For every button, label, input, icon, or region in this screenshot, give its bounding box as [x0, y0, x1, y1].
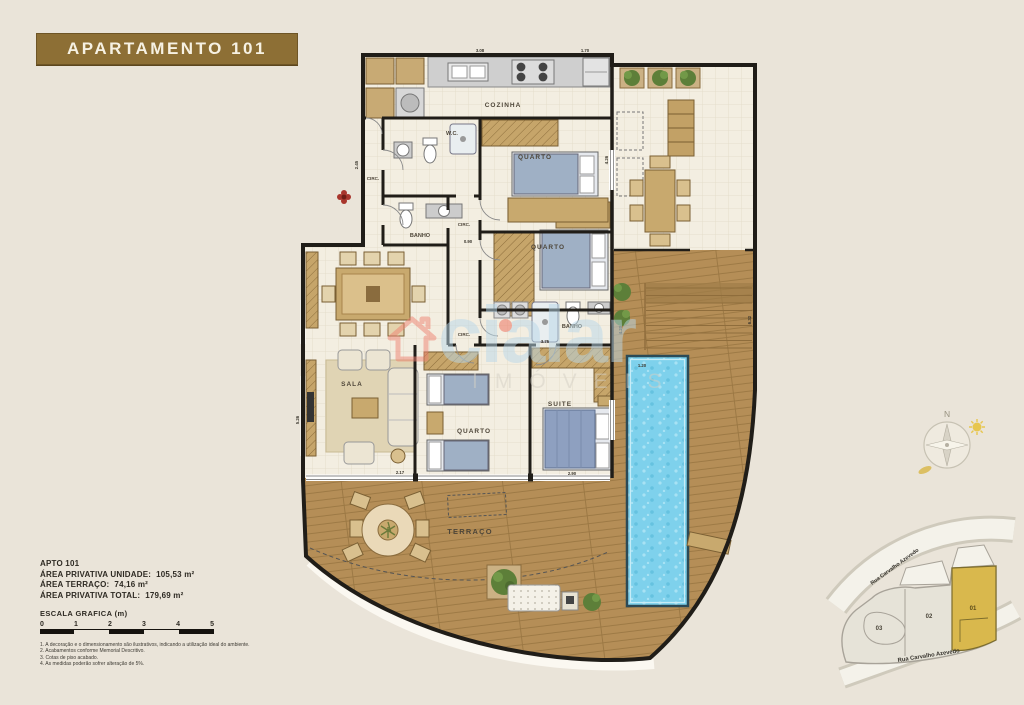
armchair [338, 350, 362, 370]
room-label-quarto1: QUARTO [518, 154, 552, 161]
scale-tick: 2 [108, 621, 112, 628]
stool [391, 449, 405, 463]
room-label-wc: W.C. [446, 131, 458, 137]
dresser [424, 352, 478, 370]
footnote: 4. As medidas poderão sofrer alteração d… [40, 661, 320, 667]
desk [508, 198, 608, 222]
dim-label: 1.70 [581, 48, 590, 53]
dim-label: 5.26 [295, 415, 300, 424]
site-unit-label-03: 03 [876, 626, 883, 632]
loveseat [344, 442, 374, 464]
nightstand [427, 412, 443, 434]
pool [627, 356, 688, 606]
scale-tick: 4 [176, 621, 180, 628]
area-label: ÁREA PRIVATIVA UNIDADE: [40, 570, 151, 579]
area-value: 179,69 m² [145, 591, 183, 600]
area-value: 105,53 m² [156, 570, 194, 579]
graphic-scale: ESCALA GRAFICA (m) 0 1 2 3 4 5 [40, 609, 214, 634]
dim-label: 4.20 [618, 325, 623, 334]
sun-icon [969, 419, 985, 435]
scale-tick: 3 [142, 621, 146, 628]
dim-label: 1.20 [638, 363, 647, 368]
dim-label: 2.17 [396, 470, 405, 475]
lounge-mat [508, 585, 560, 611]
scale-ticks: 0 1 2 3 4 5 [40, 621, 214, 628]
decorative-marker [337, 190, 351, 204]
toilet [424, 145, 436, 163]
scale-label: ESCALA GRAFICA (m) [40, 609, 214, 618]
site-upper-block [900, 561, 950, 585]
compass: N [917, 409, 985, 476]
armchair [366, 350, 390, 370]
room-label-sala: SALA [341, 381, 363, 388]
room-label-circ1: CIRC. [367, 176, 380, 181]
area-label: ÁREA TERRAÇO: [40, 580, 109, 589]
moon-icon [917, 464, 932, 475]
scale-tick: 5 [210, 621, 214, 628]
scale-tick: 0 [40, 621, 44, 628]
area-info: APTO 101 ÁREA PRIVATIVA UNIDADE:105,53 m… [40, 559, 194, 601]
wardrobe [482, 120, 558, 146]
room-label-banho1: BANHO [410, 233, 431, 239]
wardrobe [532, 348, 612, 368]
area-value: 74,16 m² [114, 580, 148, 589]
sideboard [306, 252, 318, 328]
room-label-circ2: CIRC. [458, 222, 471, 227]
dim-label: 4.26 [604, 155, 609, 164]
site-unit-label-01: 01 [970, 606, 977, 612]
room-label-terraco: TERRAÇO [447, 527, 492, 536]
dim-label: 2.45 [354, 160, 359, 169]
planter-icon [620, 68, 700, 88]
dim-label: 3.75 [541, 339, 550, 344]
coffee-table [352, 398, 378, 418]
room-label-suite: SUITE [548, 401, 572, 408]
area-label: ÁREA PRIVATIVA TOTAL: [40, 591, 140, 600]
dim-label: 3.08 [476, 48, 485, 53]
area-info-heading: APTO 101 [40, 559, 194, 570]
dim-label: 2.90 [568, 471, 577, 476]
site-plan: 03 02 01 Rua Carvalho Azevedo Rua Carval… [836, 529, 1016, 678]
footnotes: 1. A decoração e o dimensionamento são i… [40, 642, 320, 668]
scale-bar [40, 629, 214, 634]
room-label-circ3: CIRC. [458, 332, 471, 337]
scale-tick: 1 [74, 621, 78, 628]
page: APARTAMENTO 101 [0, 0, 1024, 705]
room-label-banho2: BANHO [562, 324, 583, 330]
dim-label: 6.32 [747, 315, 752, 324]
room-label-quarto2: QUARTO [531, 244, 565, 251]
site-unit-label-02: 02 [926, 614, 933, 620]
dim-label: 0.90 [464, 239, 473, 244]
room-label-cozinha: COZINHA [485, 102, 522, 109]
basin [397, 144, 409, 156]
floor-plan: COZINHA W.C. QUARTO CIRC. BANHO CIRC. QU… [295, 48, 755, 666]
compass-north-label: N [944, 409, 950, 419]
suite-furniture [532, 348, 612, 470]
room-label-quarto3: QUARTO [457, 428, 491, 435]
